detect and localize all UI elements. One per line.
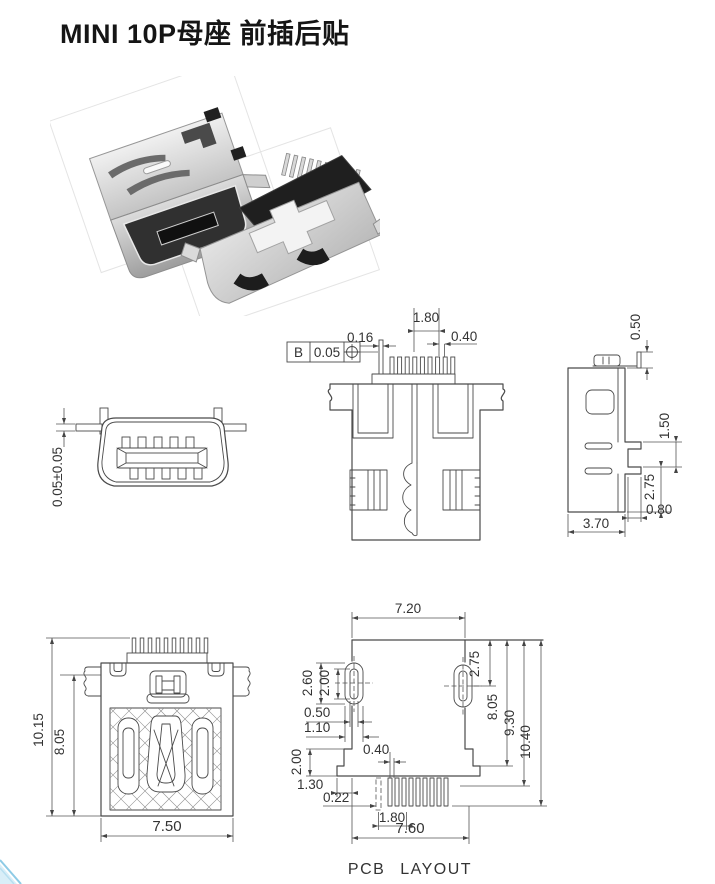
bottom-view-cavities	[353, 384, 473, 536]
dim-step-width: 1.30	[297, 777, 323, 792]
page-title: MINI 10P母座 前插后贴	[60, 12, 350, 51]
dim-slot-offset-right: 2.75	[467, 651, 482, 677]
latch-springs	[118, 716, 213, 794]
bottom-view-outline	[328, 374, 504, 540]
dim-leg-pitch: 1.50	[657, 413, 672, 439]
dim-leg-span: 2.75	[642, 474, 657, 500]
dim-slot-width: 1.10	[304, 720, 330, 735]
pcb-pads	[376, 778, 448, 810]
blue-corner-shape	[0, 864, 17, 884]
dim-depth-total: 10.40	[518, 725, 533, 759]
dim-slot-inner-height: 2.00	[317, 670, 332, 696]
side-view-body	[568, 352, 641, 512]
dim-tab-height: 0.50	[628, 314, 643, 340]
corner-decoration	[0, 852, 26, 884]
bottom-view-contact-blocks	[350, 470, 480, 510]
dim-overall-length: 10.15	[31, 713, 46, 747]
product-photos	[50, 76, 380, 316]
side-view: 0.50 1.50 2.75 0.80 3.70	[553, 293, 708, 548]
dim-slot-inner-width: 0.50	[304, 705, 330, 720]
dim-group-pitch: 1.80	[413, 310, 439, 325]
top-view: 10.15 8.05 7.50	[28, 608, 273, 860]
holddown-pad	[376, 778, 381, 810]
fcf-datum: B	[294, 345, 303, 360]
pcb-layout-drawing: 7.20 2.60 2.00 0.50 1.10 2.75 8.05 9.30	[290, 595, 558, 863]
dim-seating-offset: 0.05±0.05	[50, 447, 65, 507]
dim-pad-width: 0.40	[451, 329, 477, 344]
dim-slot-height: 2.60	[300, 670, 315, 696]
datasheet-page: MINI 10P母座 前插后贴	[0, 0, 715, 884]
dim-depth-outline: 9.30	[502, 710, 517, 736]
dim-depth-slot: 8.05	[485, 694, 500, 720]
dim-slot-span: 7.20	[395, 601, 421, 616]
dim-body-depth: 3.70	[583, 516, 609, 531]
dim-leg-offset: 0.80	[646, 502, 672, 517]
pcb-dimensions: 7.20 2.60 2.00 0.50 1.10 2.75 8.05 9.30	[290, 601, 547, 844]
fcf-tolerance: 0.05	[314, 345, 340, 360]
dim-pad-width: 0.40	[363, 742, 389, 757]
front-view-dimensions: 0.05±0.05	[50, 408, 75, 507]
bottom-view-dimensions: 1.80 0.16 0.40	[347, 308, 477, 357]
dim-body-length: 8.05	[52, 729, 67, 755]
pcb-layout-caption: PCB LAYOUT	[300, 861, 520, 879]
dim-holddown-width: 0.22	[323, 790, 349, 805]
bottom-view: 1.80 0.16 0.40 B 0.05	[280, 295, 525, 565]
front-view: 0.05±0.05	[45, 380, 275, 530]
dim-step-height: 2.00	[290, 749, 304, 775]
feature-control-frame: B 0.05	[287, 342, 378, 362]
dim-body-width: 7.50	[152, 818, 181, 835]
dim-outline-width: 7.60	[395, 820, 424, 837]
front-view-tongue	[117, 448, 207, 468]
top-view-pins	[127, 638, 208, 663]
bottom-view-pins	[379, 340, 455, 374]
pcb-slots	[335, 656, 482, 715]
